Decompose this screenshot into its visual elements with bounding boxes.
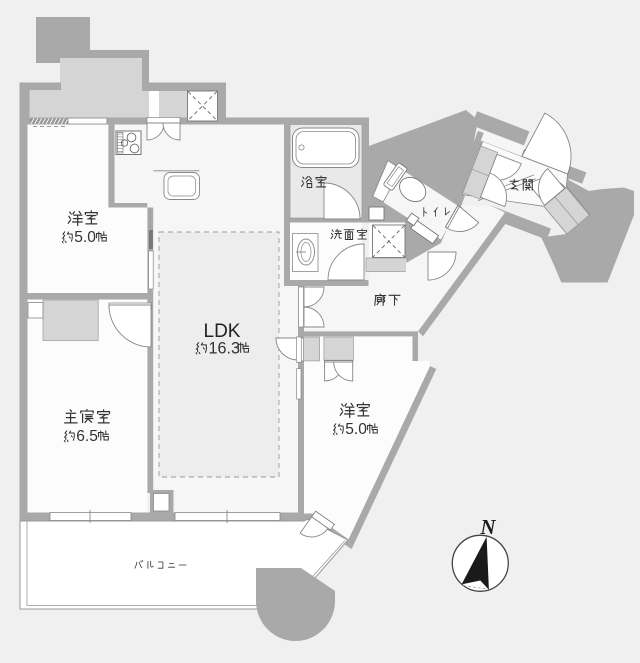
svg-text:N: N bbox=[479, 515, 496, 539]
svg-text:5.0: 5.0 bbox=[345, 421, 367, 438]
svg-text:6.5: 6.5 bbox=[76, 428, 98, 445]
svg-text:16.3: 16.3 bbox=[209, 340, 241, 358]
svg-text:5.0: 5.0 bbox=[74, 229, 96, 246]
